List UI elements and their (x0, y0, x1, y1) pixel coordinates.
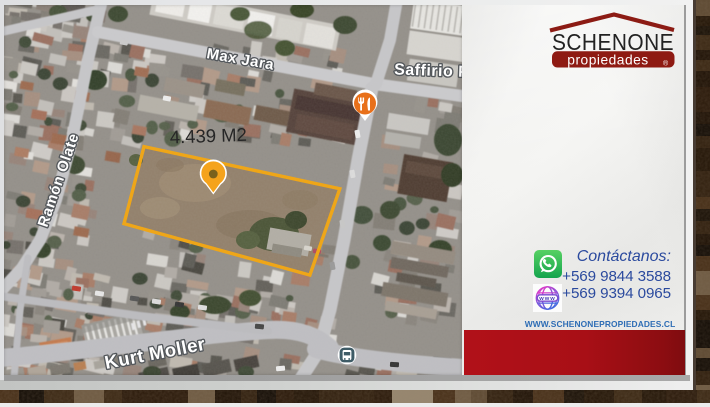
svg-text:Saffirio P: Saffirio P (394, 61, 462, 81)
svg-text:propiedades: propiedades (567, 53, 648, 68)
svg-text:4.439 M2: 4.439 M2 (169, 124, 247, 148)
svg-text:®: ® (663, 60, 669, 68)
svg-text:SCHENONE: SCHENONE (552, 29, 674, 55)
